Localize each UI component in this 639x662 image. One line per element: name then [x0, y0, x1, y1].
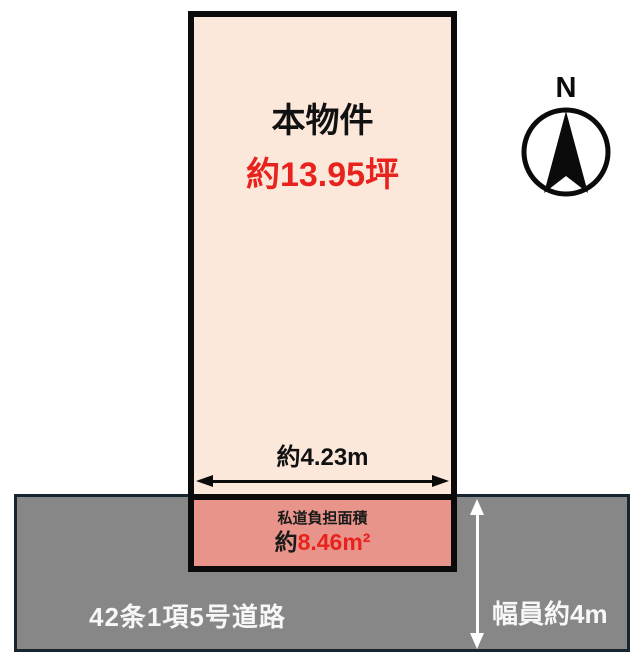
- arrow-right-head-icon: [432, 475, 449, 487]
- private-road-area-prefix: 約: [275, 529, 298, 555]
- private-road-burden-area: 私道負担面積 約8.46m²: [194, 500, 451, 566]
- compass-north-label: N: [519, 74, 613, 103]
- private-road-title: 私道負担面積: [277, 510, 367, 529]
- compass: N: [519, 74, 613, 204]
- frontage-dimension-label: 約4.23m: [194, 444, 451, 472]
- private-road-area-number: 8.46m²: [298, 529, 371, 555]
- arrow-down-head-icon: [470, 633, 484, 649]
- property-area-label: 約13.95坪: [194, 157, 451, 194]
- arrow-shaft: [476, 507, 479, 641]
- arrow-shaft: [208, 480, 437, 483]
- north-arrow-icon: [519, 105, 613, 199]
- property-plot: 本物件 約13.95坪 約4.23m 私道負担面積 約8.46m²: [188, 11, 457, 572]
- road-name-label: 42条1項5号道路: [89, 603, 286, 632]
- property-name-label: 本物件: [194, 103, 451, 140]
- road-width-label: 幅員約4m: [492, 600, 608, 629]
- private-road-area-value: 約8.46m²: [275, 529, 371, 557]
- frontage-dimension-arrow-icon: [196, 474, 449, 488]
- property-main-area: 本物件 約13.95坪 約4.23m: [194, 17, 451, 494]
- road-width-arrow-icon: [470, 499, 486, 649]
- land-plot-diagram: 42条1項5号道路 本物件 約13.95坪 約4.23m 私道負担面積 約8.4…: [0, 0, 639, 662]
